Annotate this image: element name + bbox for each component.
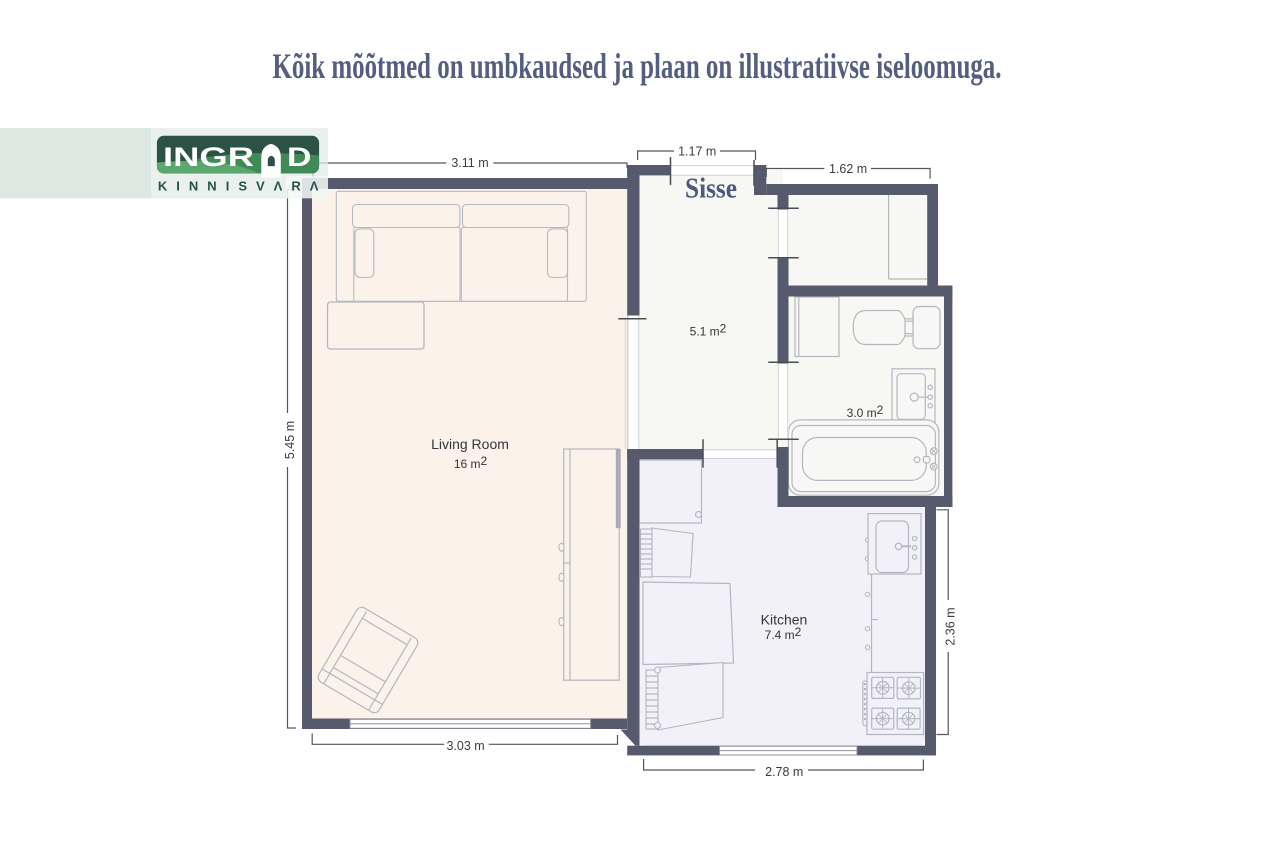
svg-text:Kõik mõõtmed on umbkaudsed ja: Kõik mõõtmed on umbkaudsed ja plaan on i… xyxy=(273,46,1002,86)
svg-text:2.36 m: 2.36 m xyxy=(944,607,958,645)
svg-text:INGR: INGR xyxy=(163,142,254,172)
svg-text:Sisse: Sisse xyxy=(685,174,737,205)
svg-text:1.62 m: 1.62 m xyxy=(829,162,867,176)
svg-text:Living Room: Living Room xyxy=(431,436,509,452)
svg-text:1.17 m: 1.17 m xyxy=(678,144,716,158)
svg-text:D: D xyxy=(287,142,312,172)
svg-text:5.45 m: 5.45 m xyxy=(283,421,297,459)
svg-text:3.11 m: 3.11 m xyxy=(451,156,488,170)
svg-text:2.78 m: 2.78 m xyxy=(765,765,803,779)
svg-text:3.03 m: 3.03 m xyxy=(446,739,484,753)
